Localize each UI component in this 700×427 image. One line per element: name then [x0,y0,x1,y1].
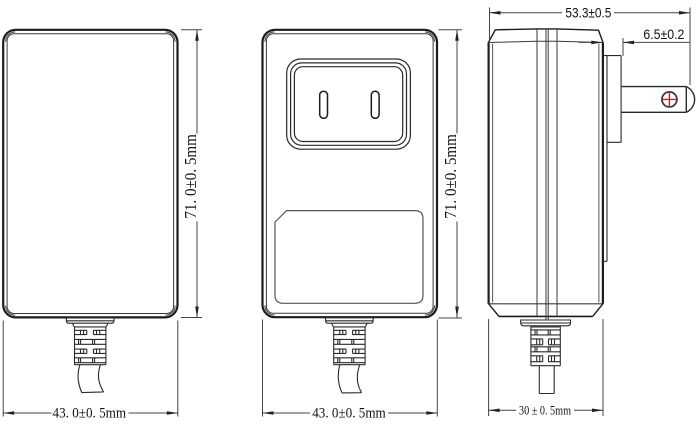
svg-text:71. 0±0. 5mm: 71. 0±0. 5mm [181,134,200,219]
svg-text:43. 0±0. 5mm: 43. 0±0. 5mm [312,406,386,422]
svg-text:30 ± 0. 5mm: 30 ± 0. 5mm [519,402,571,417]
svg-text:71. 0±0. 5mm: 71. 0±0. 5mm [441,134,460,219]
svg-text:6.5±0.2: 6.5±0.2 [643,27,684,42]
svg-text:53.3±0.5: 53.3±0.5 [565,5,611,21]
svg-text:43. 0±0. 5mm: 43. 0±0. 5mm [53,406,127,422]
